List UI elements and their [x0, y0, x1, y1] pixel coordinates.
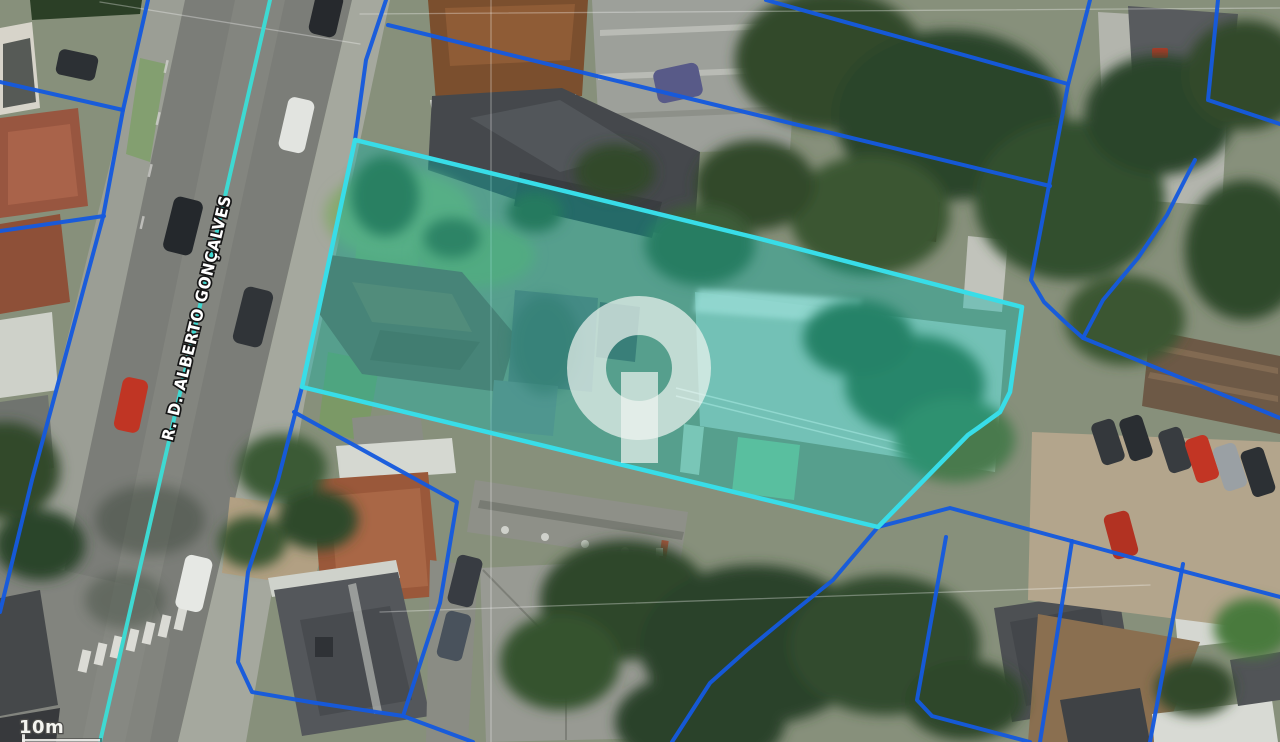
- map-canvas[interactable]: R. D. ALBERTO GONÇALVES 10m: [0, 0, 1280, 742]
- scale-label: 10m: [19, 717, 64, 738]
